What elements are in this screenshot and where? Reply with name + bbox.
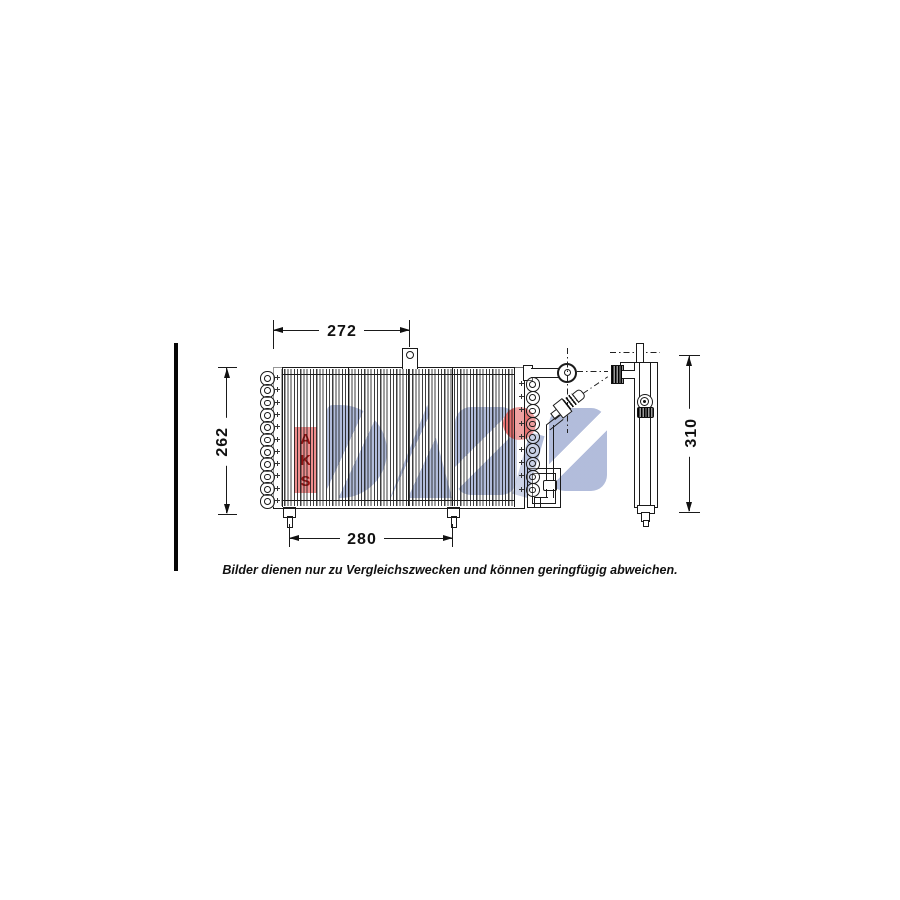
mounting-pin-stem: [287, 516, 294, 528]
tube-end-circle-inner: [264, 474, 271, 481]
drier-centerline: [610, 352, 660, 353]
dim-arrow-up: [686, 356, 692, 366]
core-seam-line: [452, 368, 453, 506]
tube-end-circle-inner: [264, 424, 271, 431]
drier-body: [634, 362, 658, 508]
end-plate-mark: [275, 437, 280, 442]
end-plate-mark: [275, 387, 280, 392]
tube-end-circle-inner: [264, 498, 271, 505]
tube-end-circle-inner: [529, 434, 536, 441]
pipe-elbow-vertical: [534, 497, 541, 507]
dim-arrow-down: [224, 504, 230, 514]
drier-bracket-top: [620, 362, 634, 363]
core-seam-line: [348, 368, 349, 506]
dim-arrow-down: [686, 502, 692, 512]
end-plate-mark: [275, 461, 280, 466]
end-plate-mark: [519, 407, 524, 412]
drier-inlet-stub: [622, 370, 635, 380]
core-bottom-header-line: [281, 500, 515, 501]
left-border-line: [174, 343, 178, 571]
dim-272-extension: [409, 320, 410, 347]
core-fins: [281, 369, 515, 506]
dim-310-label: 310: [682, 409, 702, 457]
dim-arrow-left: [289, 535, 299, 541]
bracket-hole: [406, 351, 415, 360]
tube-end-circle-inner: [264, 375, 271, 382]
dim-310-tick: [679, 512, 700, 513]
end-plate-mark: [275, 412, 280, 417]
end-plate-mark: [519, 381, 524, 386]
tube-end-circle-inner: [264, 486, 271, 493]
dim-272-extension: [273, 320, 274, 349]
core-top-header-line: [281, 374, 515, 375]
tube-end-circle-inner: [264, 412, 271, 419]
end-plate-mark: [275, 400, 280, 405]
end-plate-mark: [519, 421, 524, 426]
dim-arrow-up: [224, 368, 230, 378]
end-plate-mark: [275, 486, 280, 491]
centerline-vertical: [567, 348, 568, 433]
drier-valve-collar: [637, 407, 654, 418]
dim-262-label: 262: [213, 418, 233, 466]
end-plate-mark: [275, 449, 280, 454]
drier-body-contour: [650, 362, 651, 506]
end-plate-mark: [275, 375, 280, 380]
end-plate-mark: [519, 460, 524, 465]
centerline-horizontal: [577, 371, 608, 372]
dim-280-extension: [289, 524, 290, 547]
drier-bottom-tip: [643, 520, 649, 527]
tube-end-circle-inner: [264, 449, 271, 456]
end-plate-mark: [519, 447, 524, 452]
dim-272-label: 272: [319, 323, 365, 341]
end-plate-mark: [519, 394, 524, 399]
end-plate-mark: [519, 434, 524, 439]
end-plate-mark: [275, 424, 280, 429]
end-plate-mark: [275, 498, 280, 503]
inlet-fitting-pipe: [531, 368, 559, 378]
drier-top-tab: [636, 343, 644, 363]
end-plate-mark: [519, 487, 524, 492]
drier-body-contour: [639, 362, 640, 506]
dim-262-tick: [218, 514, 237, 515]
tube-end-circle-inner: [264, 461, 271, 468]
dim-280-label: 280: [339, 531, 385, 549]
technical-diagram-page: A K S: [0, 0, 900, 900]
core-seam-line: [408, 368, 409, 506]
drier-sight-glass-dot: [643, 400, 646, 403]
dim-arrow-left: [273, 327, 283, 333]
footer-disclaimer: Bilder dienen nur zu Vergleichszwecken u…: [0, 562, 900, 578]
end-plate-mark: [519, 473, 524, 478]
end-plate-mark: [275, 473, 280, 478]
dim-280-extension: [452, 524, 453, 547]
